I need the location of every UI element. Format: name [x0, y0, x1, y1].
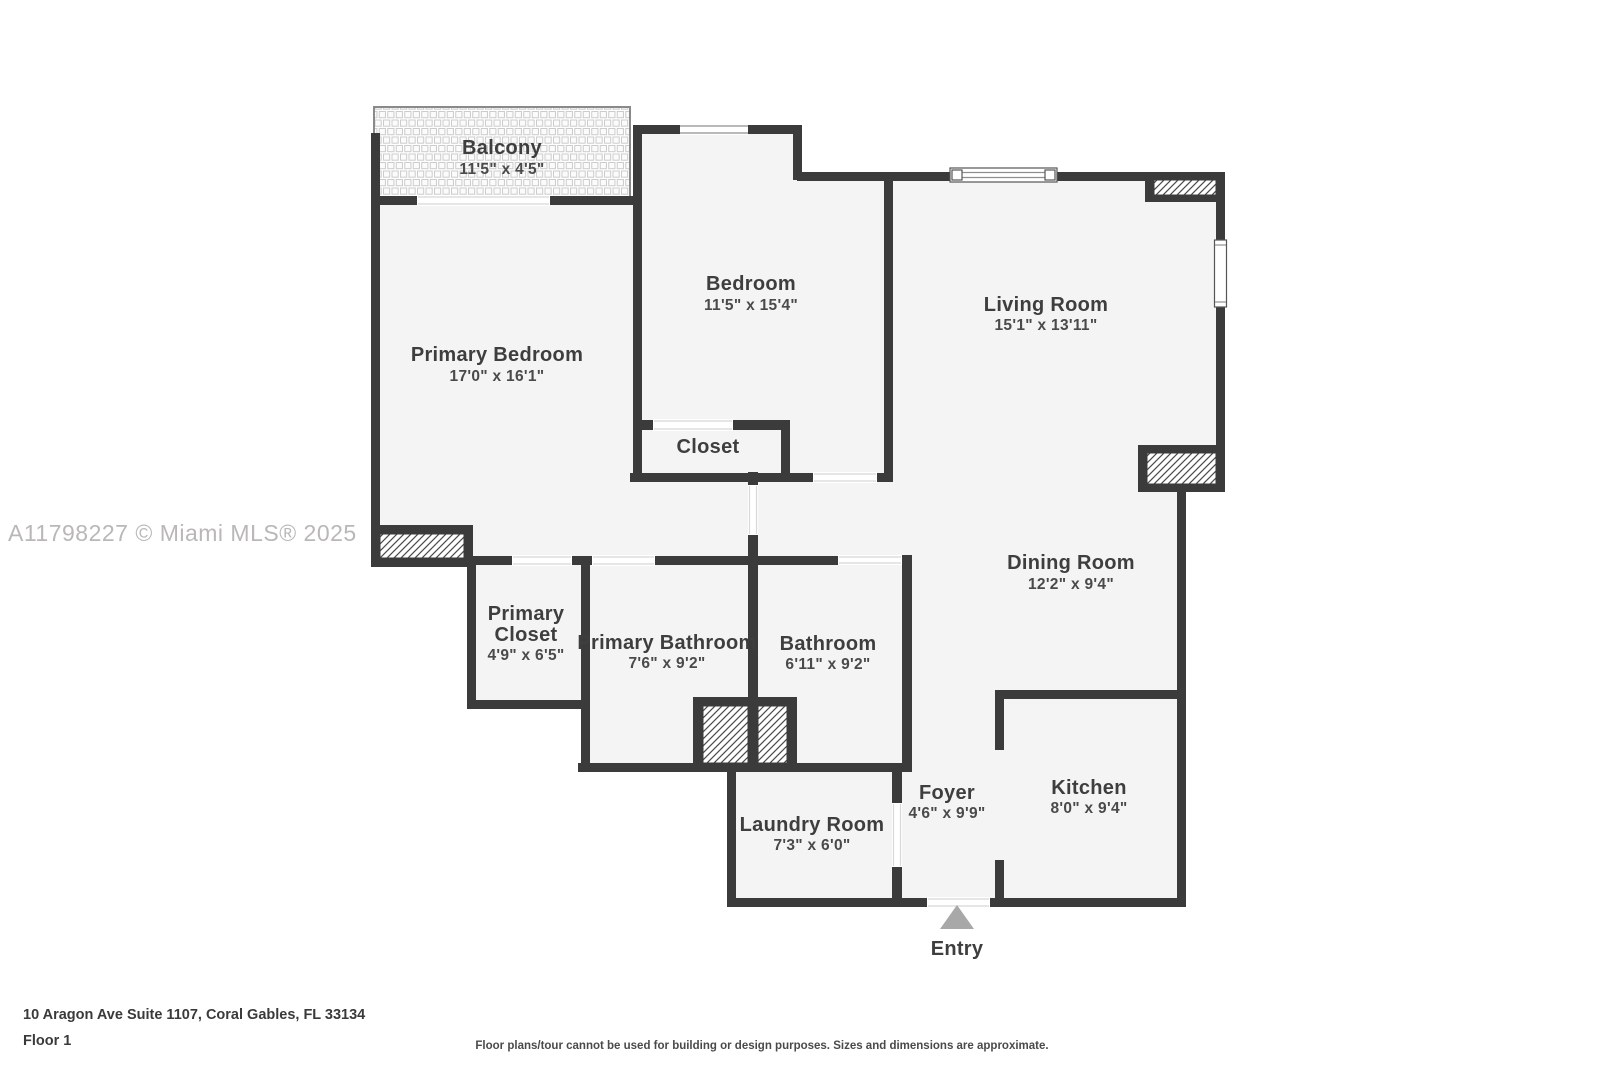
room-living-room: Living Room 15'1" x 13'11" [984, 294, 1108, 334]
room-dims-balcony: 11'5" x 4'5" [459, 161, 544, 178]
floor-kitchen [998, 694, 1183, 904]
bedroom-door [813, 472, 877, 483]
bedroom-window [680, 124, 748, 135]
room-label-primary-bedroom: Primary Bedroom [411, 344, 583, 366]
primary-suite-door [748, 485, 758, 535]
mls-watermark: A11798227 © Miami MLS® 2025 [8, 520, 357, 546]
room-dims-living-room: 15'1" x 13'11" [995, 317, 1098, 334]
living-room-side-window [1215, 240, 1227, 307]
room-dims-primary-bedroom: 17'0" x 16'1" [450, 368, 545, 385]
room-dims-primary-closet: 4'9" x 6'5" [487, 647, 564, 664]
column-hatch-east [1147, 453, 1216, 484]
entry-door [927, 897, 990, 908]
room-dims-bedroom: 11'5" x 15'4" [704, 297, 798, 314]
bathroom-door [838, 555, 902, 565]
balcony-door [417, 195, 550, 206]
floor-bedroom-right [795, 178, 893, 478]
floor-number: Floor 1 [23, 1033, 71, 1049]
floor-plan: Balcony 11'5" x 4'5" Primary Bedroom 17'… [0, 0, 1600, 1066]
room-bathroom: Bathroom 6'11" x 9'2" [780, 633, 877, 673]
room-kitchen: Kitchen 8'0" x 9'4" [1050, 777, 1127, 817]
room-dims-primary-bathroom: 7'6" x 9'2" [628, 655, 705, 672]
room-label-bathroom: Bathroom [780, 633, 877, 655]
room-label-dining-room: Dining Room [1007, 552, 1135, 574]
room-primary-closet: Primary Closet 4'9" x 6'5" [487, 603, 564, 664]
column-hatch-northeast [1154, 180, 1216, 195]
room-label-living-room: Living Room [984, 294, 1108, 316]
laundry-door [892, 803, 902, 867]
living-room-window [950, 168, 1057, 182]
primary-closet-door [512, 555, 572, 566]
property-address: 10 Aragon Ave Suite 1107, Coral Gables, … [23, 1007, 365, 1023]
room-label-foyer: Foyer [919, 782, 975, 804]
room-dims-kitchen: 8'0" x 9'4" [1050, 800, 1127, 817]
room-label-closet: Closet [677, 436, 740, 458]
shaft-hatch-right [758, 706, 787, 763]
disclaimer-text: Floor plans/tour cannot be used for buil… [475, 1040, 1048, 1052]
room-label-kitchen: Kitchen [1051, 777, 1126, 799]
floor-hall-alcove [634, 476, 754, 561]
room-dims-foyer: 4'6" x 9'9" [908, 805, 985, 822]
entry-label: Entry [931, 938, 984, 960]
room-label-balcony: Balcony [462, 137, 542, 159]
room-foyer: Foyer 4'6" x 9'9" [908, 782, 985, 822]
room-label-primary-closet-line2: Closet [495, 624, 558, 646]
room-bedroom: Bedroom 11'5" x 15'4" [704, 273, 798, 314]
shaft-hatch-left [703, 706, 748, 763]
room-dims-dining-room: 12'2" x 9'4" [1028, 576, 1114, 593]
room-label-bedroom: Bedroom [706, 273, 796, 295]
entry-arrow-icon [940, 905, 974, 929]
column-hatch-west [380, 534, 464, 558]
floor-plan-page: Balcony 11'5" x 4'5" Primary Bedroom 17'… [0, 0, 1600, 1066]
footer: 10 Aragon Ave Suite 1107, Coral Gables, … [23, 1007, 1049, 1052]
room-label-primary-bathroom: Primary Bathroom [577, 632, 756, 654]
primary-bathroom-door [592, 555, 655, 566]
room-dims-bathroom: 6'11" x 9'2" [785, 656, 870, 673]
room-label-primary-closet-line1: Primary [488, 603, 565, 625]
closet-door [653, 419, 733, 431]
room-dims-laundry-room: 7'3" x 6'0" [773, 837, 850, 854]
room-label-laundry-room: Laundry Room [740, 814, 885, 836]
entry-marker: Entry [931, 905, 984, 960]
room-balcony: Balcony 11'5" x 4'5" [459, 137, 544, 178]
room-closet: Closet [677, 436, 740, 458]
